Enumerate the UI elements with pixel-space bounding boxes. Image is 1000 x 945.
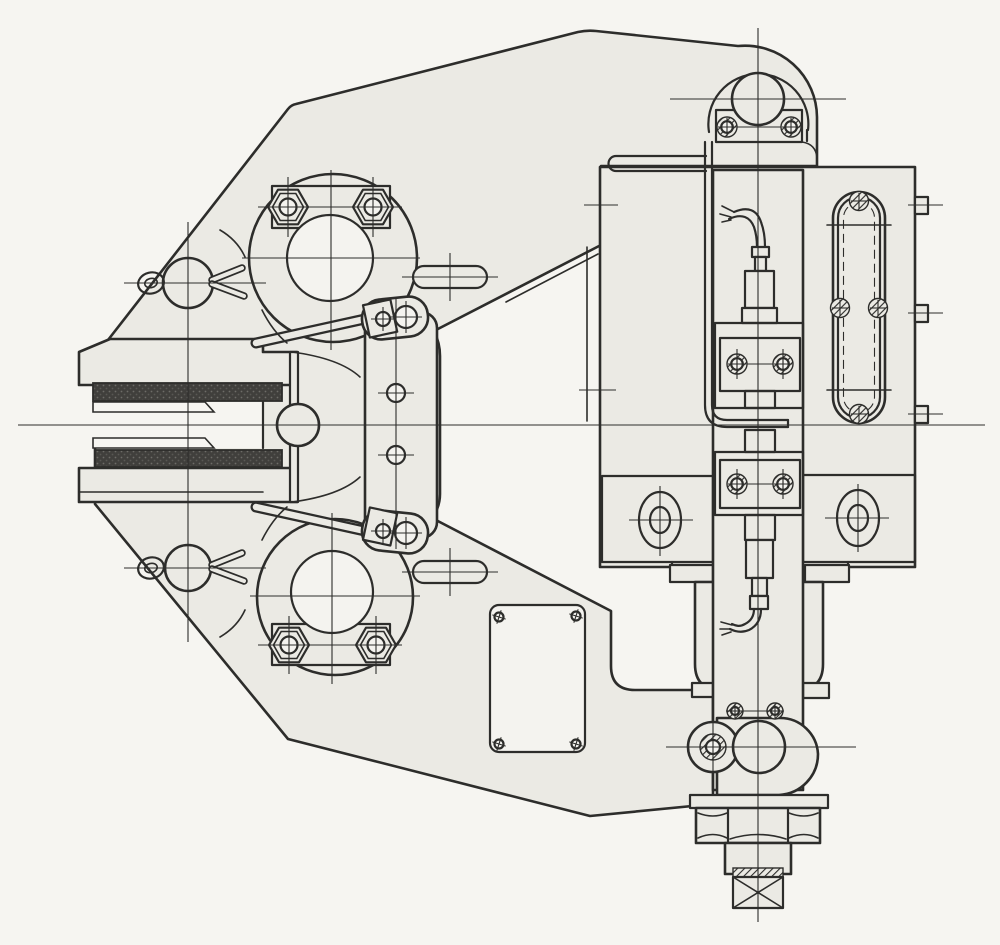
lower-cell-neck bbox=[752, 578, 767, 596]
bracket-bolt-right bbox=[781, 117, 801, 137]
slot-screw-mid-left bbox=[831, 299, 850, 318]
lower-pad-backing bbox=[93, 438, 214, 448]
drawing-canvas bbox=[0, 0, 1000, 945]
upper-cell-body bbox=[745, 271, 774, 308]
boot-flange-right bbox=[805, 565, 849, 582]
lower-cable-plug bbox=[750, 596, 768, 609]
boot-ear-right bbox=[803, 683, 829, 698]
upper-cell-neck bbox=[755, 257, 766, 271]
boot-ear-left bbox=[692, 683, 713, 697]
bracket-bolt-left bbox=[717, 117, 737, 137]
upper-pad-backing bbox=[93, 402, 214, 412]
engineering-drawing bbox=[0, 0, 1000, 945]
slot-screw-bottom bbox=[850, 405, 869, 424]
cover-plate bbox=[490, 605, 585, 752]
upper-cell-base bbox=[742, 308, 777, 323]
lobe-flange bbox=[690, 795, 828, 808]
boot-flange-left bbox=[670, 565, 713, 582]
slotted-window bbox=[827, 192, 891, 424]
side-tabs bbox=[915, 197, 928, 423]
slot-screw-mid-right bbox=[869, 299, 888, 318]
upper-cable-plug bbox=[752, 247, 769, 257]
slot-screw-top bbox=[850, 192, 869, 211]
lower-cell-body bbox=[746, 540, 773, 578]
